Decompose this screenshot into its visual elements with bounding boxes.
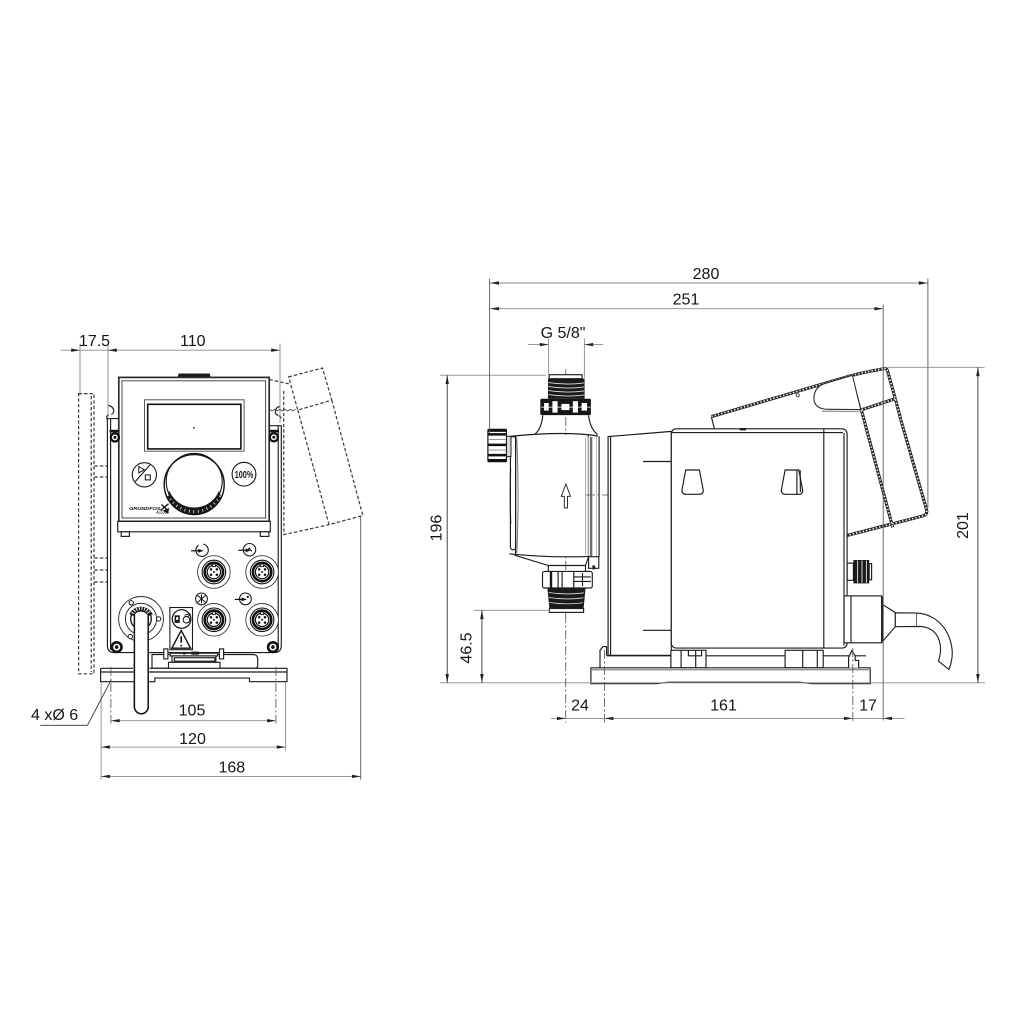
svg-text:G 5/8": G 5/8" — [541, 325, 586, 342]
svg-text:24: 24 — [571, 697, 589, 714]
svg-text:17.5: 17.5 — [79, 333, 110, 350]
svg-text:168: 168 — [218, 759, 245, 776]
svg-text:280: 280 — [693, 266, 720, 283]
svg-text:120: 120 — [179, 731, 206, 748]
svg-text:161: 161 — [710, 697, 737, 714]
svg-text:251: 251 — [673, 292, 700, 309]
svg-text:ALLDOS: ALLDOS — [156, 509, 170, 514]
svg-text:17: 17 — [859, 697, 877, 714]
svg-text:100%: 100% — [235, 470, 254, 481]
svg-text:46.5: 46.5 — [459, 632, 476, 663]
svg-text:105: 105 — [179, 702, 206, 719]
svg-text:110: 110 — [180, 333, 206, 350]
svg-text:4 xØ 6: 4 xØ 6 — [31, 707, 78, 724]
svg-text:201: 201 — [955, 512, 972, 539]
svg-text:196: 196 — [429, 515, 446, 542]
